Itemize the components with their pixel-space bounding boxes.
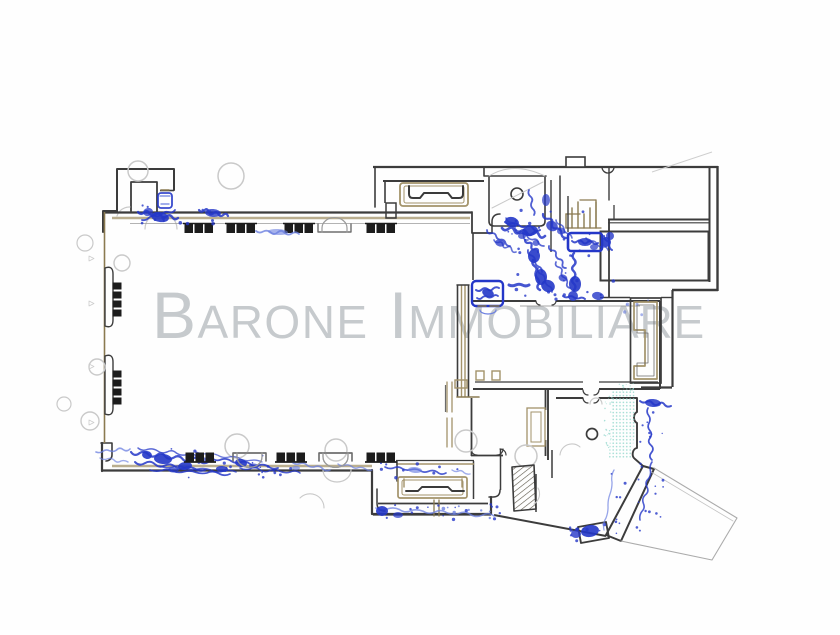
- svg-text:Barone: Barone: [152, 278, 369, 352]
